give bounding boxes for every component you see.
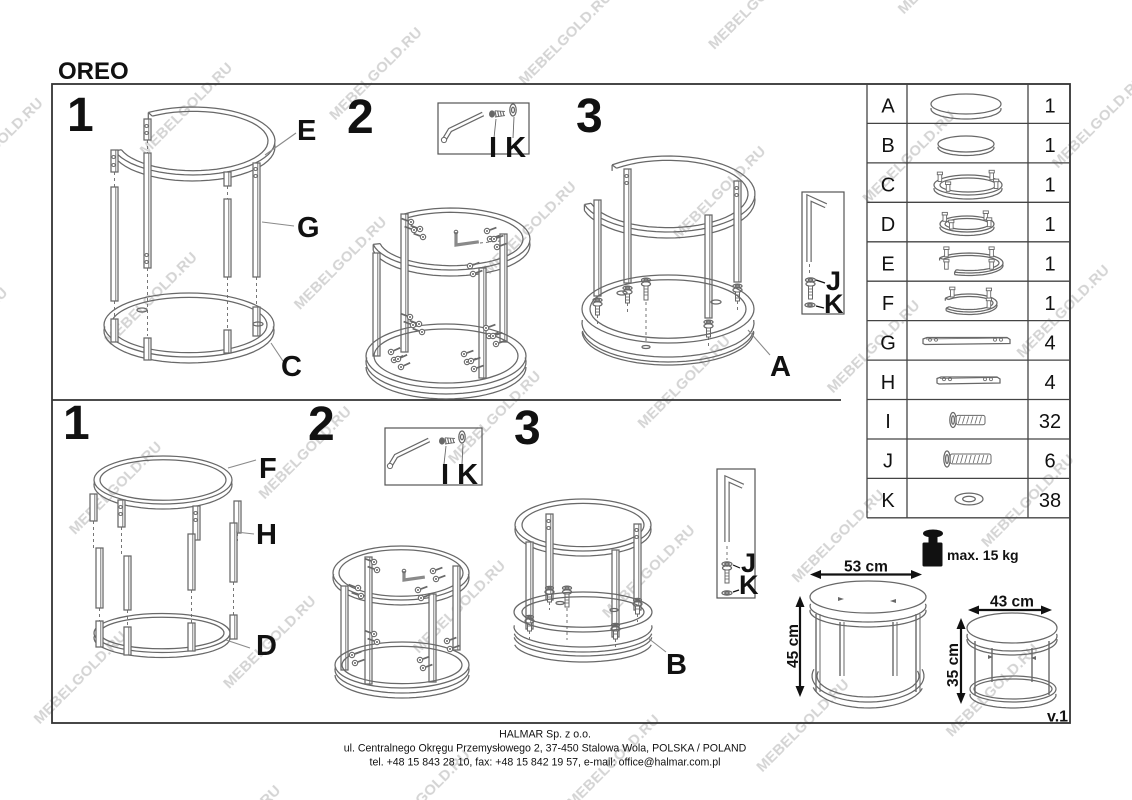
svg-text:F: F: [882, 293, 894, 315]
svg-text:B: B: [666, 649, 687, 681]
svg-text:F: F: [259, 453, 277, 485]
svg-text:I K: I K: [441, 459, 478, 491]
svg-text:4: 4: [1044, 332, 1055, 354]
svg-text:1: 1: [1044, 135, 1055, 157]
svg-text:v.1: v.1: [1047, 709, 1068, 726]
svg-text:OREO: OREO: [58, 58, 129, 85]
svg-text:HALMAR Sp. z o.o.: HALMAR Sp. z o.o.: [499, 729, 591, 741]
svg-text:E: E: [297, 115, 316, 147]
svg-text:1: 1: [1044, 175, 1055, 197]
svg-text:B: B: [881, 135, 894, 157]
svg-text:1: 1: [1044, 96, 1055, 118]
svg-text:K: K: [739, 570, 759, 600]
svg-text:35 cm: 35 cm: [945, 643, 962, 687]
svg-text:4: 4: [1044, 372, 1055, 394]
svg-text:6: 6: [1044, 451, 1055, 473]
svg-text:2: 2: [347, 91, 374, 144]
svg-text:I K: I K: [489, 132, 526, 164]
svg-text:43 cm: 43 cm: [990, 594, 1034, 611]
svg-text:D: D: [256, 630, 277, 662]
svg-text:1: 1: [63, 397, 90, 450]
svg-text:A: A: [881, 96, 895, 118]
svg-text:32: 32: [1039, 411, 1061, 433]
svg-text:1: 1: [67, 89, 94, 142]
svg-text:H: H: [256, 519, 277, 551]
svg-text:G: G: [297, 212, 320, 244]
svg-text:E: E: [881, 253, 894, 275]
svg-text:max. 15 kg: max. 15 kg: [947, 547, 1019, 563]
svg-text:1: 1: [1044, 293, 1055, 315]
svg-text:tel. +48 15 843 28 10, fax: +4: tel. +48 15 843 28 10, fax: +48 15 842 1…: [370, 757, 721, 769]
svg-text:3: 3: [514, 402, 541, 455]
svg-text:C: C: [881, 175, 895, 197]
svg-text:53 cm: 53 cm: [844, 559, 888, 576]
svg-text:G: G: [880, 332, 896, 354]
svg-text:1: 1: [1044, 253, 1055, 275]
svg-text:I: I: [885, 411, 891, 433]
svg-text:3: 3: [576, 90, 603, 143]
svg-text:A: A: [770, 351, 791, 383]
svg-text:1: 1: [1044, 214, 1055, 236]
svg-text:D: D: [881, 214, 895, 236]
svg-text:2: 2: [308, 398, 335, 451]
svg-text:H: H: [881, 372, 895, 394]
svg-text:K: K: [881, 490, 895, 512]
svg-text:ul. Centralnego Okręgu Przemys: ul. Centralnego Okręgu Przemysłowego 2, …: [344, 743, 747, 755]
svg-text:38: 38: [1039, 490, 1061, 512]
svg-text:C: C: [281, 351, 302, 383]
svg-text:J: J: [883, 451, 893, 473]
svg-text:K: K: [824, 289, 844, 319]
